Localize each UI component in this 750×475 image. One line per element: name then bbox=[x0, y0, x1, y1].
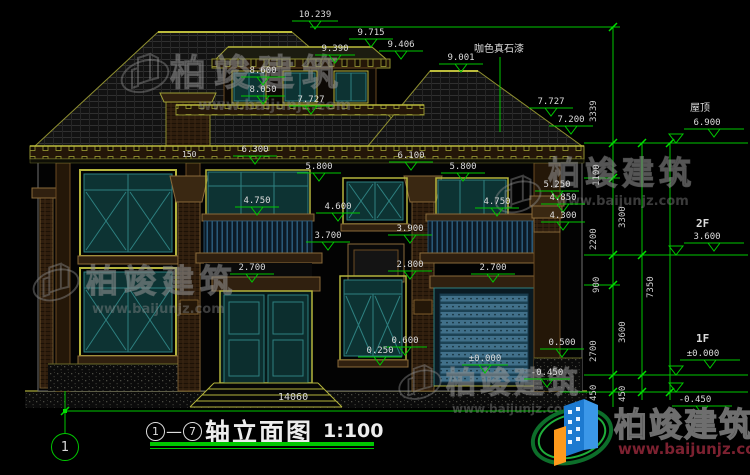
brand-logo-icon bbox=[528, 388, 614, 475]
title-underline-thick bbox=[150, 442, 374, 446]
cad-elevation-sheet: 柏竣建筑 www.baijunjz.com 柏竣建筑 www.baijunjz.… bbox=[0, 0, 750, 475]
axis-range-dash: — bbox=[166, 422, 182, 441]
brand-company-name: 柏竣建筑 bbox=[614, 398, 750, 446]
stair-bay bbox=[338, 178, 409, 367]
axis-bubble-1: 1 bbox=[51, 433, 79, 461]
entrance-steps bbox=[190, 383, 342, 407]
title-scale: 1:100 bbox=[323, 420, 383, 442]
brand-website: www.baijunjz.com bbox=[618, 440, 750, 458]
axis-end-bubble: 7 bbox=[183, 422, 202, 441]
axis-start-bubble: 1 bbox=[146, 422, 165, 441]
entrance-door bbox=[220, 291, 312, 383]
center-balcony bbox=[196, 170, 322, 291]
garage-wing bbox=[420, 163, 582, 391]
roof bbox=[30, 32, 584, 163]
title-underline-thin bbox=[150, 448, 374, 449]
dormer-windows bbox=[232, 71, 368, 103]
axis-bubble-label: 1 bbox=[61, 440, 69, 455]
brand-logo: 柏竣建筑 www.baijunjz.com bbox=[528, 388, 750, 475]
